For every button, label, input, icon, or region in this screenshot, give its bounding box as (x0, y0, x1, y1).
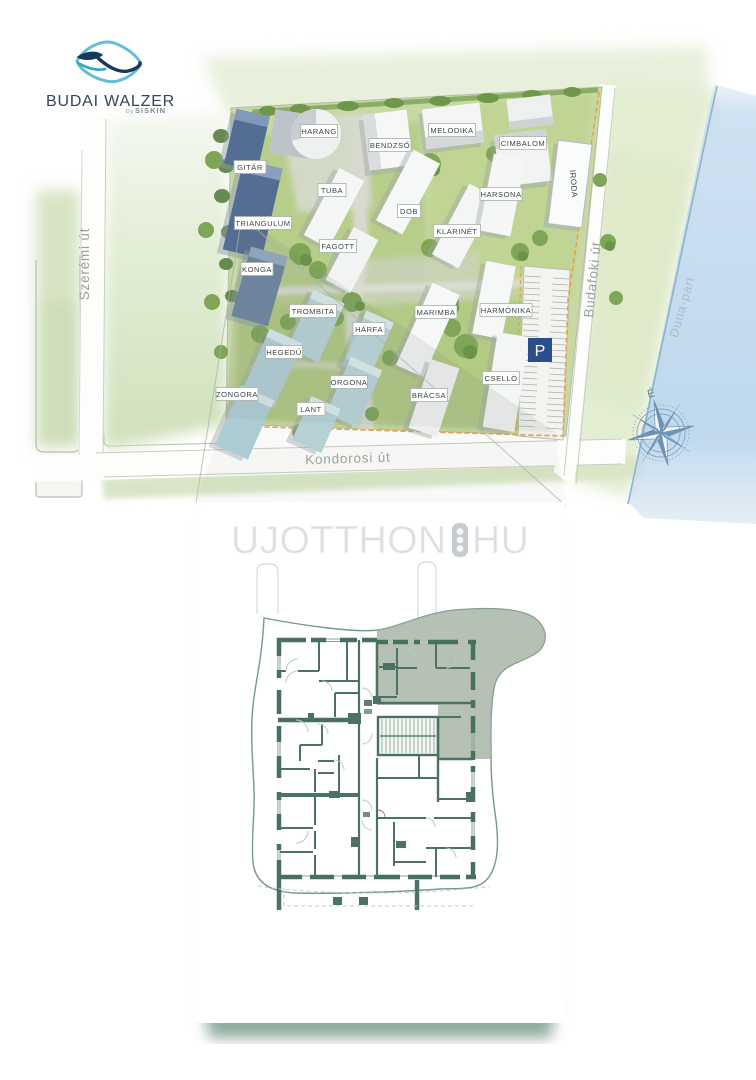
svg-text:ZONGORA: ZONGORA (216, 390, 258, 399)
svg-text:FAGOTT: FAGOTT (321, 242, 354, 251)
svg-text:CIMBALOM: CIMBALOM (501, 139, 546, 148)
svg-text:TUBA: TUBA (321, 186, 344, 195)
svg-text:TRIANGULUM: TRIANGULUM (235, 219, 290, 228)
svg-text:HEGEDŰ: HEGEDŰ (266, 348, 302, 357)
svg-text:HU: HU (472, 519, 529, 562)
svg-text:by: by (126, 108, 134, 115)
svg-text:SISKIN: SISKIN (135, 106, 166, 115)
svg-text:GITÁR: GITÁR (237, 163, 263, 172)
svg-text:HARMÓNIKA: HARMÓNIKA (481, 306, 532, 315)
svg-text:BRÁCSA: BRÁCSA (412, 391, 447, 400)
svg-text:LANT: LANT (300, 405, 321, 414)
svg-text:CSELLÓ: CSELLÓ (485, 374, 518, 383)
svg-text:KLARINÉT: KLARINÉT (436, 227, 477, 236)
svg-text:HÁRFA: HÁRFA (355, 325, 383, 334)
svg-text:UJOTTHON: UJOTTHON (231, 519, 447, 562)
svg-text:HARANG: HARANG (301, 127, 337, 136)
svg-text:BENDZSŐ: BENDZSŐ (370, 141, 410, 150)
svg-text:DOB: DOB (400, 207, 418, 216)
svg-text:Szerémi út: Szerémi út (77, 228, 92, 301)
svg-text:TROMBITA: TROMBITA (292, 307, 335, 316)
svg-text:HARSONA: HARSONA (480, 190, 521, 199)
svg-text:MELODIKA: MELODIKA (430, 126, 474, 135)
svg-text:P: P (535, 343, 546, 360)
svg-text:MARIMBA: MARIMBA (417, 308, 456, 317)
svg-text:KONGA: KONGA (242, 265, 272, 274)
svg-text:ORGONA: ORGONA (331, 378, 368, 387)
svg-text:Kondorosi út: Kondorosi út (305, 450, 391, 468)
